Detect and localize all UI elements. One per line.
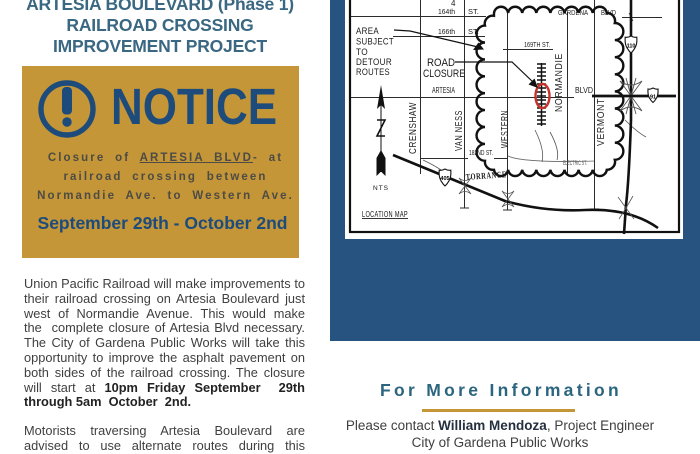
svg-text:405: 405 — [440, 176, 449, 182]
svg-text:WESTERN: WESTERN — [499, 110, 511, 148]
svg-text:VERMONT: VERMONT — [595, 98, 607, 146]
svg-text:NORMANDIE: NORMANDIE — [553, 53, 565, 112]
svg-text:4: 4 — [451, 0, 456, 8]
svg-text:169TH ST.: 169TH ST. — [524, 42, 550, 49]
svg-text:182ND ST.: 182ND ST. — [469, 150, 493, 157]
svg-text:ARTESIA: ARTESIA — [432, 86, 455, 95]
svg-text:ROUTES: ROUTES — [356, 67, 390, 78]
svg-text:91: 91 — [650, 95, 656, 101]
svg-text:ST.: ST. — [468, 7, 479, 16]
svg-text:AREA: AREA — [356, 26, 379, 37]
svg-text:SUBJECT: SUBJECT — [356, 37, 394, 48]
svg-text:ELECTRIC ST.: ELECTRIC ST. — [563, 161, 587, 167]
svg-text:TORRANCE: TORRANCE — [465, 169, 507, 182]
svg-text:LOCATION MAP: LOCATION MAP — [362, 209, 408, 219]
svg-text:VAN NESS: VAN NESS — [453, 110, 465, 151]
svg-text:110: 110 — [627, 44, 636, 50]
svg-text:CLOSURE: CLOSURE — [423, 68, 465, 80]
svg-text:BLVD: BLVD — [575, 86, 593, 95]
svg-text:166th: 166th — [438, 27, 455, 36]
svg-text:BLVD: BLVD — [601, 8, 616, 17]
svg-text:ST.: ST. — [468, 27, 479, 36]
svg-text:GARDENA: GARDENA — [558, 8, 588, 17]
svg-text:NTS: NTS — [373, 185, 389, 192]
svg-text:CRENSHAW: CRENSHAW — [407, 102, 419, 154]
svg-text:164th: 164th — [438, 7, 455, 16]
